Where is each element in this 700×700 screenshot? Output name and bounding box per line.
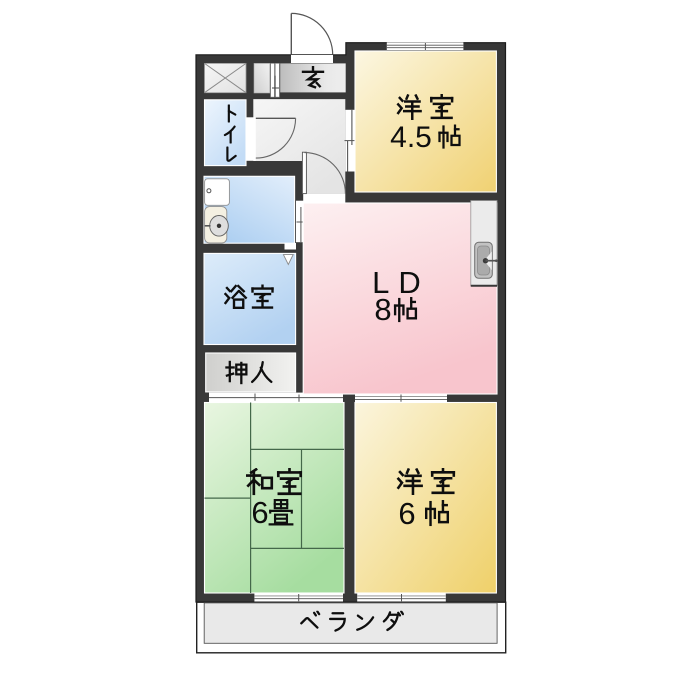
svg-text:4.5: 4.5 [390,121,432,154]
svg-text:6: 6 [398,496,415,531]
svg-text:8: 8 [374,292,391,327]
svg-text:6: 6 [251,495,268,530]
